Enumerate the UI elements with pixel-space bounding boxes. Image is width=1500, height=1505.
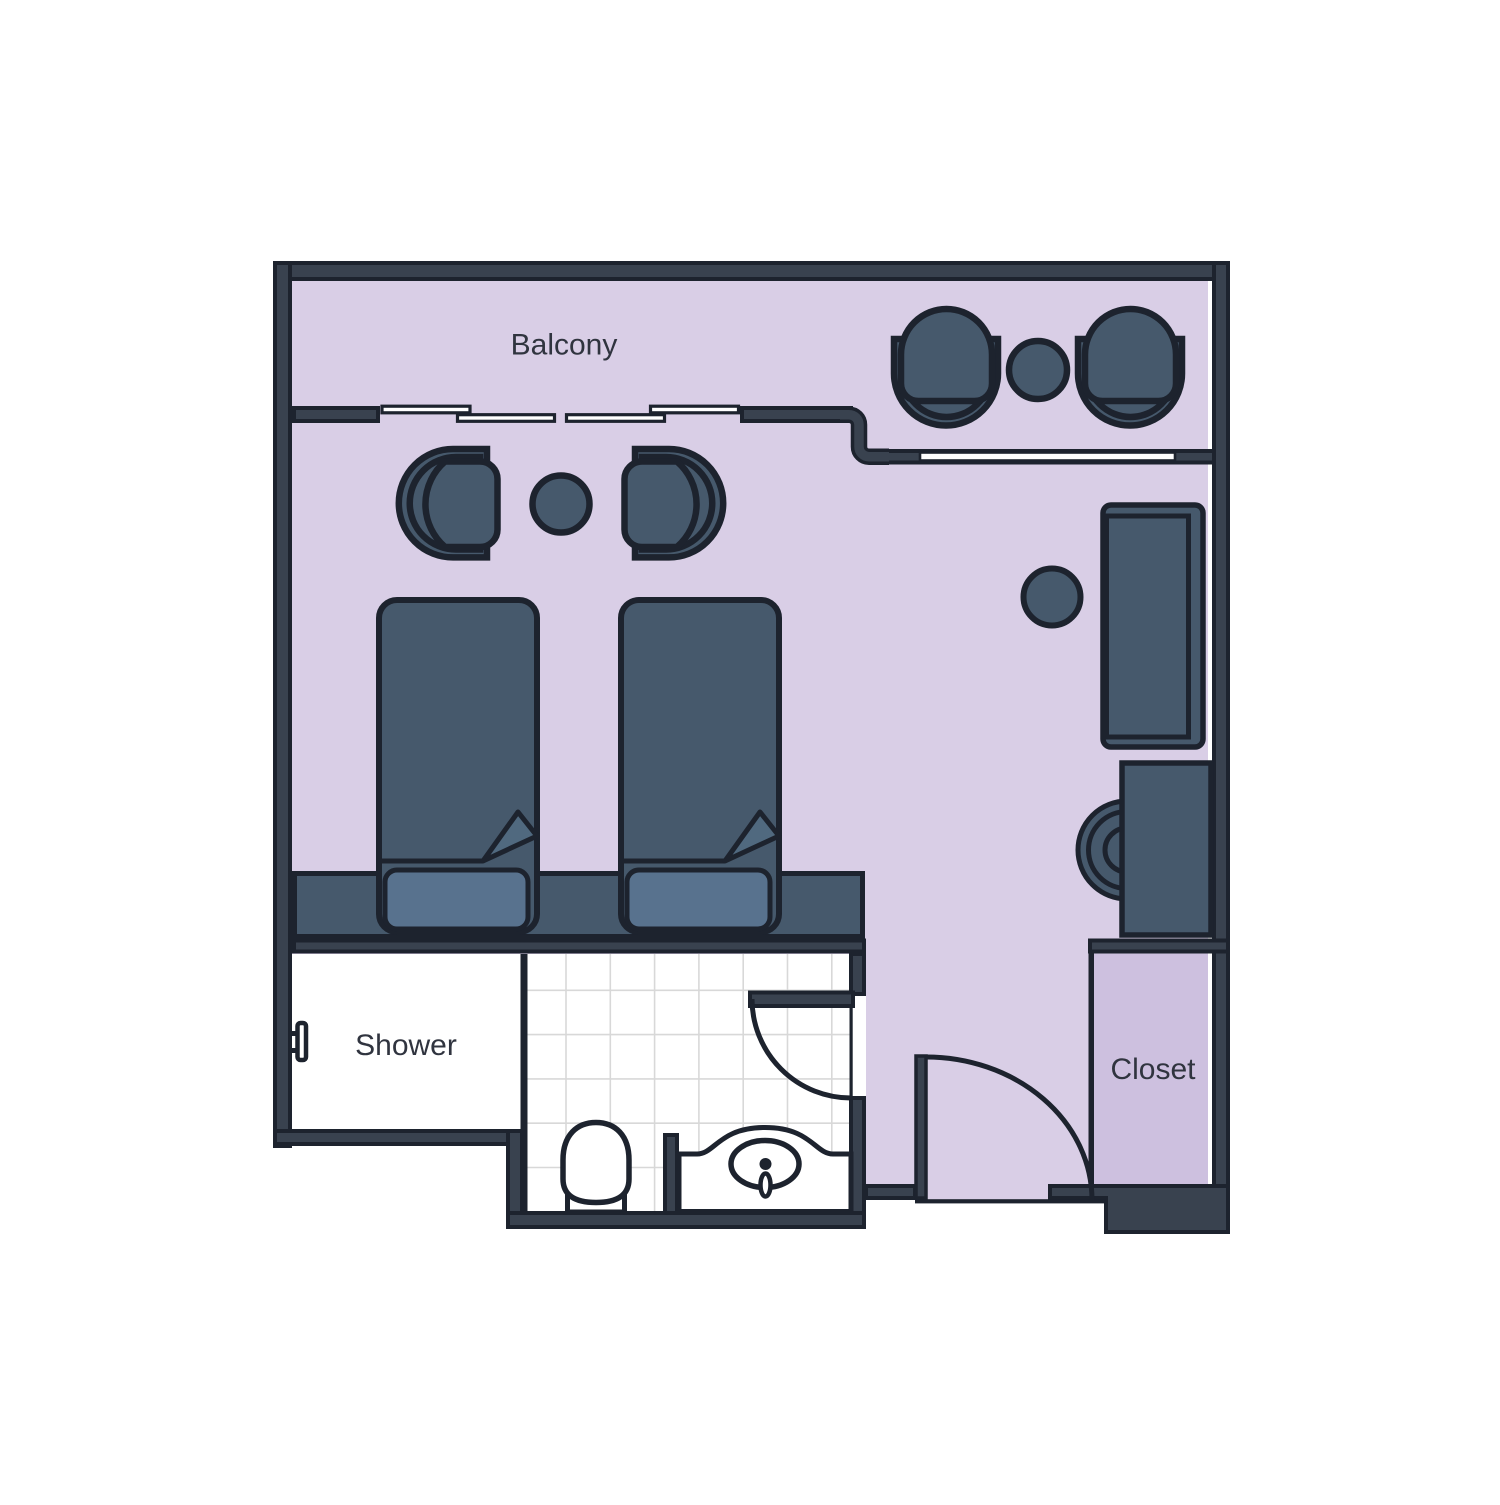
svg-text:Balcony: Balcony — [511, 329, 618, 362]
svg-text:Closet: Closet — [1110, 1053, 1196, 1086]
svg-text:Shower: Shower — [355, 1029, 457, 1062]
